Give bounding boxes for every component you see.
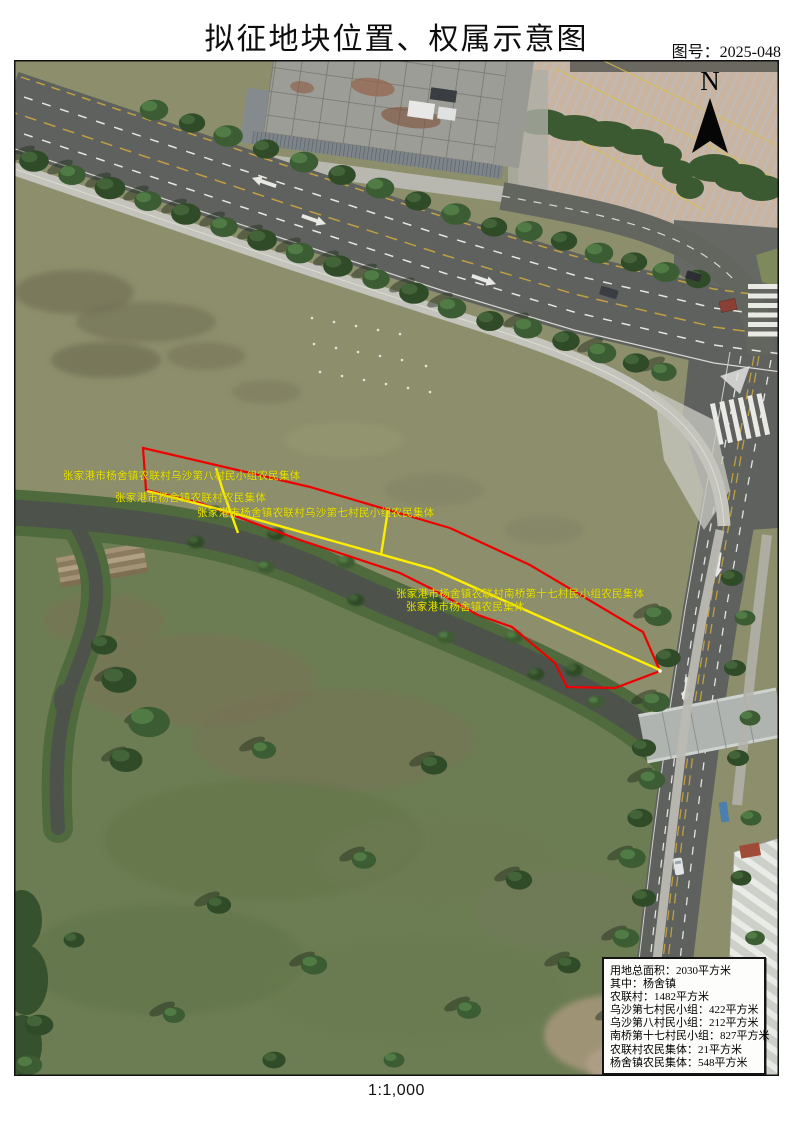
info-line-yangshe: 杨舍镇农民集体：548平方米 (610, 1057, 760, 1070)
parcel-label-wusha-8: 张家港市杨舍镇农联村乌沙第八村民小组农民集体 (63, 472, 301, 483)
info-line-total: 用地总面积：2030平方米 (610, 965, 760, 978)
parcel-label-wusha-7: 张家港市杨舍镇农联村乌沙第七村民小组农民集体 (197, 509, 435, 520)
map-scale: 1:1,000 (14, 1082, 779, 1100)
parcel-label-nonglian: 张家港市杨舍镇农联村农民集体 (115, 494, 266, 505)
info-line-nonglian: 农联村农民集体：21平方米 (610, 1044, 760, 1057)
info-line-nanqiao17: 南桥第十七村民小组：827平方米 (610, 1030, 760, 1043)
figure-number: 图号：2025-048 (672, 38, 781, 62)
map-canvas: N 张家港市杨舍镇农联村乌沙第八村民小组农民集体 张家港市杨舍镇农联村农民集体 … (14, 60, 779, 1076)
info-line-wusha8: 乌沙第八村民小组：212平方米 (610, 1017, 760, 1030)
north-label: N (700, 66, 720, 96)
aerial-basemap: N (14, 60, 779, 1076)
area-info-box: 用地总面积：2030平方米 其中：杨舍镇 农联村：1482平方米 乌沙第七村民小… (602, 957, 766, 1075)
info-line-wusha7: 乌沙第七村民小组：422平方米 (610, 1004, 760, 1017)
parcel-label-yangshe: 张家港市杨舍镇农民集体 (406, 603, 525, 614)
parcel-label-nanqiao-17: 张家港市杨舍镇农联村南桥第十七村民小组农民集体 (396, 590, 644, 601)
info-line-town: 其中：杨舍镇 (610, 978, 760, 991)
parcel-corner-marker (658, 669, 662, 673)
info-line-village: 农联村：1482平方米 (610, 991, 760, 1004)
